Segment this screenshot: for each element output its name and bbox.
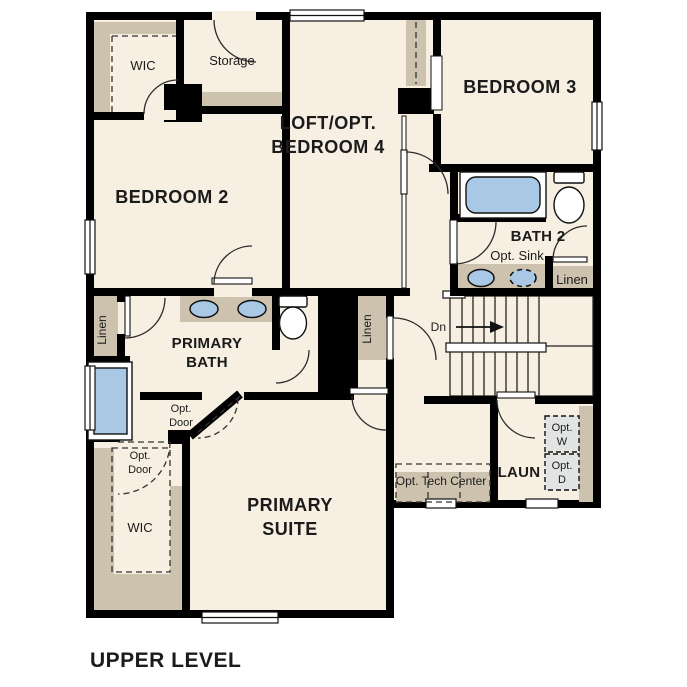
opt-door-1-label-line1: Opt. (171, 403, 192, 415)
floor-plan-svg: WIC Storage LOFT/OPT. BEDROOM 4 BEDROOM … (0, 0, 687, 687)
bath2-sink (468, 270, 494, 287)
laundry-window (526, 499, 558, 508)
loft-label-line1: LOFT/OPT. (280, 113, 377, 133)
bath2-label: BATH 2 (511, 228, 566, 245)
bedroom3-doorway (431, 56, 442, 110)
bath2-linen-door-leaf (553, 257, 587, 262)
laundry-door-leaf (497, 392, 535, 398)
bedroom2-door-leaf (212, 278, 252, 284)
linen-bath2-label: Linen (556, 272, 588, 287)
tech-center-window (426, 499, 456, 508)
opt-dryer-label-line2: D (558, 474, 566, 486)
primary-bath-sink-1 (190, 301, 218, 318)
opt-dryer-label-line1: Opt. (552, 460, 573, 472)
primary-bath-label-line2: BATH (186, 354, 228, 371)
bath2-tub (460, 172, 546, 218)
wic-primary-bottom (94, 574, 182, 610)
wic-primary-label: WIC (127, 520, 152, 535)
primary-bath-label-line1: PRIMARY (172, 335, 243, 352)
storage-shelf (200, 92, 284, 106)
plan-title: UPPER LEVEL (90, 649, 241, 672)
linen-left-label: Linen (95, 315, 109, 344)
opt-tech-center-label: Opt. Tech Center (396, 474, 487, 488)
storage-label: Storage (209, 53, 255, 68)
bedroom3-label: BEDROOM 3 (463, 77, 577, 97)
linen-mid-door-leaf (387, 316, 393, 360)
primary-suite-label-line2: SUITE (262, 519, 318, 539)
hall-door-leaf (401, 150, 407, 194)
primary-suite-label-line1: PRIMARY (247, 495, 333, 515)
primary-suite-door-leaf (350, 388, 388, 394)
opt-sink-label: Opt. Sink (490, 248, 544, 263)
bath2-door-leaf (450, 220, 457, 264)
wic-primary-right (170, 486, 182, 586)
wic-top-label: WIC (130, 58, 155, 73)
linen-left-door-leaf (125, 296, 130, 336)
stairs-dn-label: Dn (431, 320, 446, 334)
opt-washer-label-line2: W (557, 436, 568, 448)
opt-door-2-label-line1: Opt. (130, 450, 151, 462)
opt-door-2-label-line2: Door (128, 464, 152, 476)
opt-door-1-label-line2: Door (169, 417, 193, 429)
laundry-counter (579, 406, 593, 502)
loft-half-wall-upper (402, 116, 406, 152)
wic-top-shelf-left (94, 22, 110, 116)
loft-label-line2: BEDROOM 4 (271, 137, 385, 157)
linen-mid-label: Linen (360, 314, 374, 343)
opt-washer-label-line1: Opt. (552, 422, 573, 434)
bath2-optional-sink (510, 270, 536, 287)
laundry-label: LAUN (498, 464, 541, 481)
wic-top-shelf-top (94, 22, 178, 34)
primary-bath-sink-2 (238, 301, 266, 318)
bath2-toilet (554, 172, 584, 223)
floor-plan: WIC Storage LOFT/OPT. BEDROOM 4 BEDROOM … (0, 0, 687, 687)
primary-bath-toilet (279, 296, 307, 339)
bedroom2-label: BEDROOM 2 (115, 187, 229, 207)
loft-half-wall-lower (402, 194, 406, 288)
